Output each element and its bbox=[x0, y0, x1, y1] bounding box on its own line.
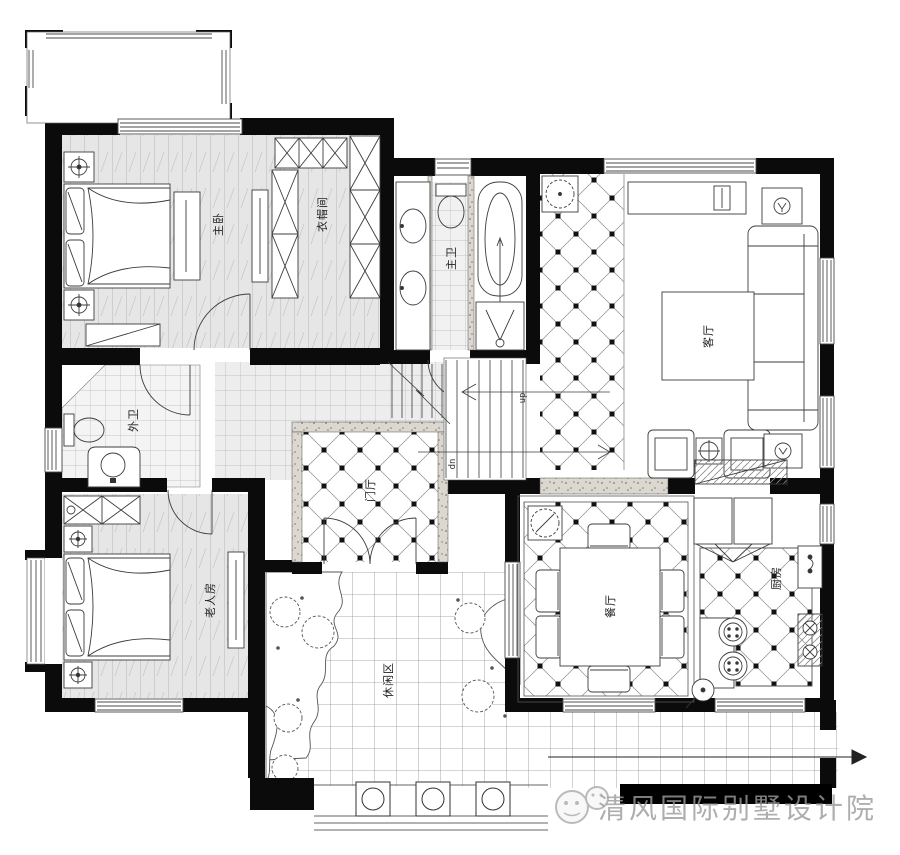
label-dining-room: 餐厅 bbox=[603, 594, 617, 618]
walkway-paving bbox=[520, 712, 838, 788]
label-leisure-area: 休闲区 bbox=[381, 662, 395, 698]
master-bedroom-window bbox=[118, 119, 242, 134]
wardrobe-cabinet bbox=[275, 138, 347, 168]
elder-bed bbox=[64, 554, 170, 660]
living-tile-strip bbox=[540, 174, 624, 470]
guest-bath-window bbox=[45, 428, 62, 472]
nightstand bbox=[64, 526, 92, 552]
tv-cabinet bbox=[174, 192, 200, 280]
living-room-top-window bbox=[604, 159, 756, 173]
plant bbox=[528, 506, 562, 540]
dining-bottom-window bbox=[563, 699, 655, 712]
bench bbox=[86, 324, 160, 346]
label-foyer: 门厅 bbox=[363, 478, 377, 502]
cooktop-burner bbox=[719, 652, 747, 680]
shrub bbox=[462, 680, 494, 712]
armchair bbox=[648, 430, 694, 478]
shrub bbox=[302, 616, 334, 648]
label-stairs-up: up bbox=[518, 393, 528, 404]
elder-bedroom-bottom-window bbox=[95, 699, 183, 712]
terrace-columns bbox=[314, 782, 548, 830]
watermark: 清风国际别墅设计院 bbox=[556, 784, 877, 825]
wardrobe-cabinet bbox=[272, 170, 298, 298]
label-kitchen: 厨房 bbox=[770, 566, 783, 590]
label-living-room: 客厅 bbox=[701, 324, 715, 348]
dining-chair bbox=[658, 616, 684, 658]
shrub bbox=[272, 755, 298, 781]
balcony-window bbox=[27, 32, 230, 123]
sink-unit bbox=[798, 546, 822, 588]
console-sideboard bbox=[695, 460, 787, 484]
shrub bbox=[270, 597, 300, 627]
dining-chair bbox=[536, 570, 562, 612]
master-bath-window bbox=[435, 159, 471, 175]
dining-chair bbox=[588, 666, 630, 692]
shower bbox=[476, 302, 524, 350]
nightstand bbox=[64, 152, 94, 182]
nightstand bbox=[64, 290, 94, 320]
label-elder-bedroom: 老人房 bbox=[204, 582, 217, 618]
label-master-bedroom: 主卧 bbox=[212, 212, 225, 236]
label-closet: 衣帽间 bbox=[315, 196, 329, 232]
plant bbox=[542, 176, 578, 212]
cooktop-burner bbox=[719, 618, 747, 646]
label-stairs-down: dn bbox=[448, 459, 458, 470]
master-bed bbox=[64, 184, 170, 288]
sofa bbox=[748, 226, 818, 430]
dining-chair bbox=[588, 524, 630, 550]
shrub bbox=[274, 704, 302, 732]
elder-bedroom-bay-window bbox=[27, 558, 62, 664]
vanity-sink bbox=[88, 447, 140, 487]
wall-tv-panel bbox=[252, 190, 268, 282]
column bbox=[476, 782, 510, 816]
nightstand bbox=[64, 662, 92, 688]
stove bbox=[798, 614, 822, 666]
vanity-sinks bbox=[396, 182, 430, 350]
dining-chair bbox=[536, 616, 562, 658]
dining-chair bbox=[658, 570, 684, 612]
wall-tv-panel bbox=[228, 552, 244, 648]
column bbox=[416, 782, 450, 816]
watermark-text: 清风国际别墅设计院 bbox=[598, 792, 877, 825]
floor-plan: 主卧 衣帽间 主卫 客厅 门厅 外卫 老人房 餐厅 厨房 休闲区 up dn 清… bbox=[0, 0, 900, 855]
wardrobe-cabinet bbox=[350, 136, 380, 298]
shrub bbox=[455, 603, 485, 633]
storage-cabinet bbox=[64, 496, 140, 524]
label-master-bath: 主卫 bbox=[445, 246, 458, 270]
column bbox=[356, 782, 390, 816]
kitchen-bottom-window bbox=[715, 699, 805, 712]
tv-console bbox=[628, 182, 746, 214]
label-guest-bath: 外卫 bbox=[127, 408, 140, 432]
kitchen-right-window bbox=[820, 504, 834, 544]
speaker bbox=[762, 188, 802, 224]
bathtub bbox=[478, 182, 522, 318]
